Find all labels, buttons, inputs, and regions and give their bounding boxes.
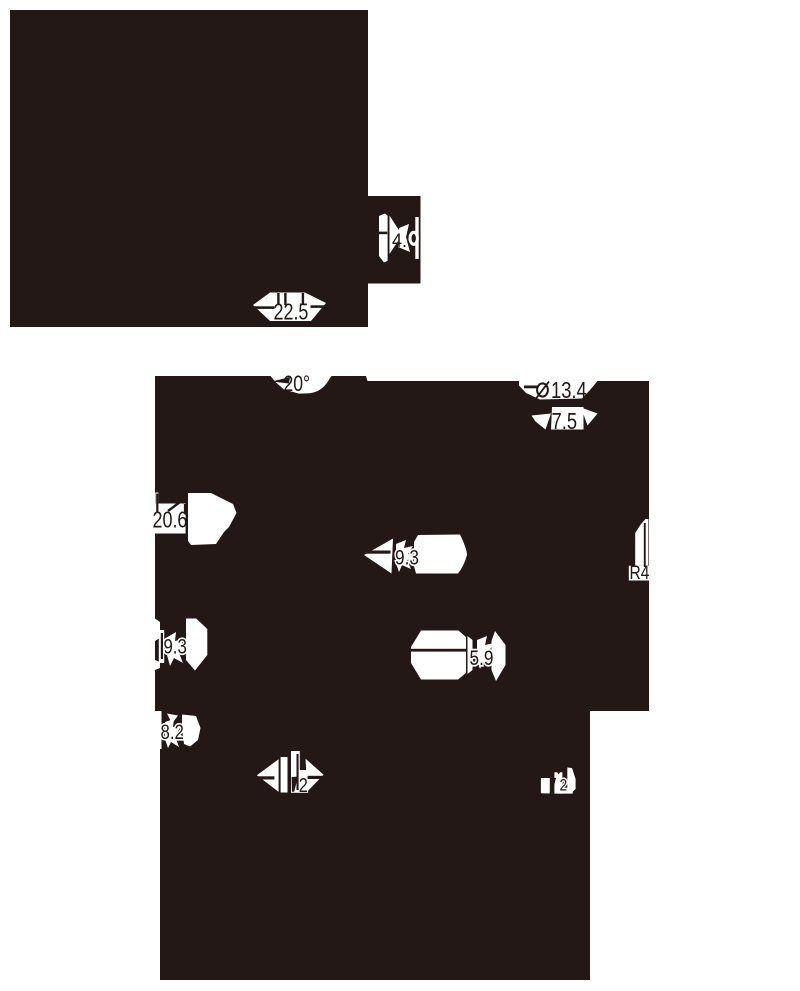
svg-text:8.2: 8.2 <box>161 721 184 744</box>
svg-text:9.3: 9.3 <box>395 547 419 570</box>
svg-text:20°: 20° <box>284 372 311 396</box>
svg-text:20.6: 20.6 <box>153 507 188 533</box>
svg-text:9.3: 9.3 <box>164 636 187 659</box>
svg-text:2: 2 <box>299 773 308 796</box>
svg-text:22.5: 22.5 <box>274 299 309 325</box>
svg-text:4.: 4. <box>392 230 407 252</box>
svg-text:5.9: 5.9 <box>470 648 494 671</box>
svg-text:R4: R4 <box>630 562 650 584</box>
svg-text:13.4: 13.4 <box>551 378 587 403</box>
svg-text:2: 2 <box>560 776 568 795</box>
svg-text:7.5: 7.5 <box>552 409 578 434</box>
